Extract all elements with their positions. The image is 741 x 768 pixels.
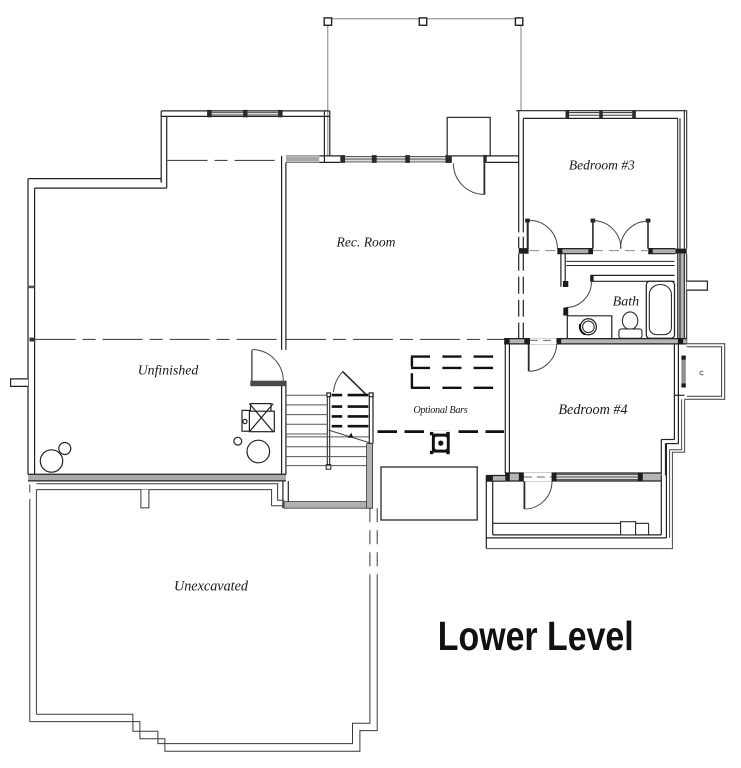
svg-text:Bedroom #3: Bedroom #3 (569, 158, 635, 173)
svg-text:Bath: Bath (613, 294, 639, 309)
svg-text:Lower Level: Lower Level (438, 613, 634, 659)
svg-text:Rec. Room: Rec. Room (336, 235, 396, 250)
svg-text:Bedroom #4: Bedroom #4 (558, 402, 627, 418)
svg-text:Unexcavated: Unexcavated (174, 579, 249, 595)
svg-text:Optional Bars: Optional Bars (413, 405, 467, 416)
svg-text:Unfinished: Unfinished (138, 363, 199, 378)
